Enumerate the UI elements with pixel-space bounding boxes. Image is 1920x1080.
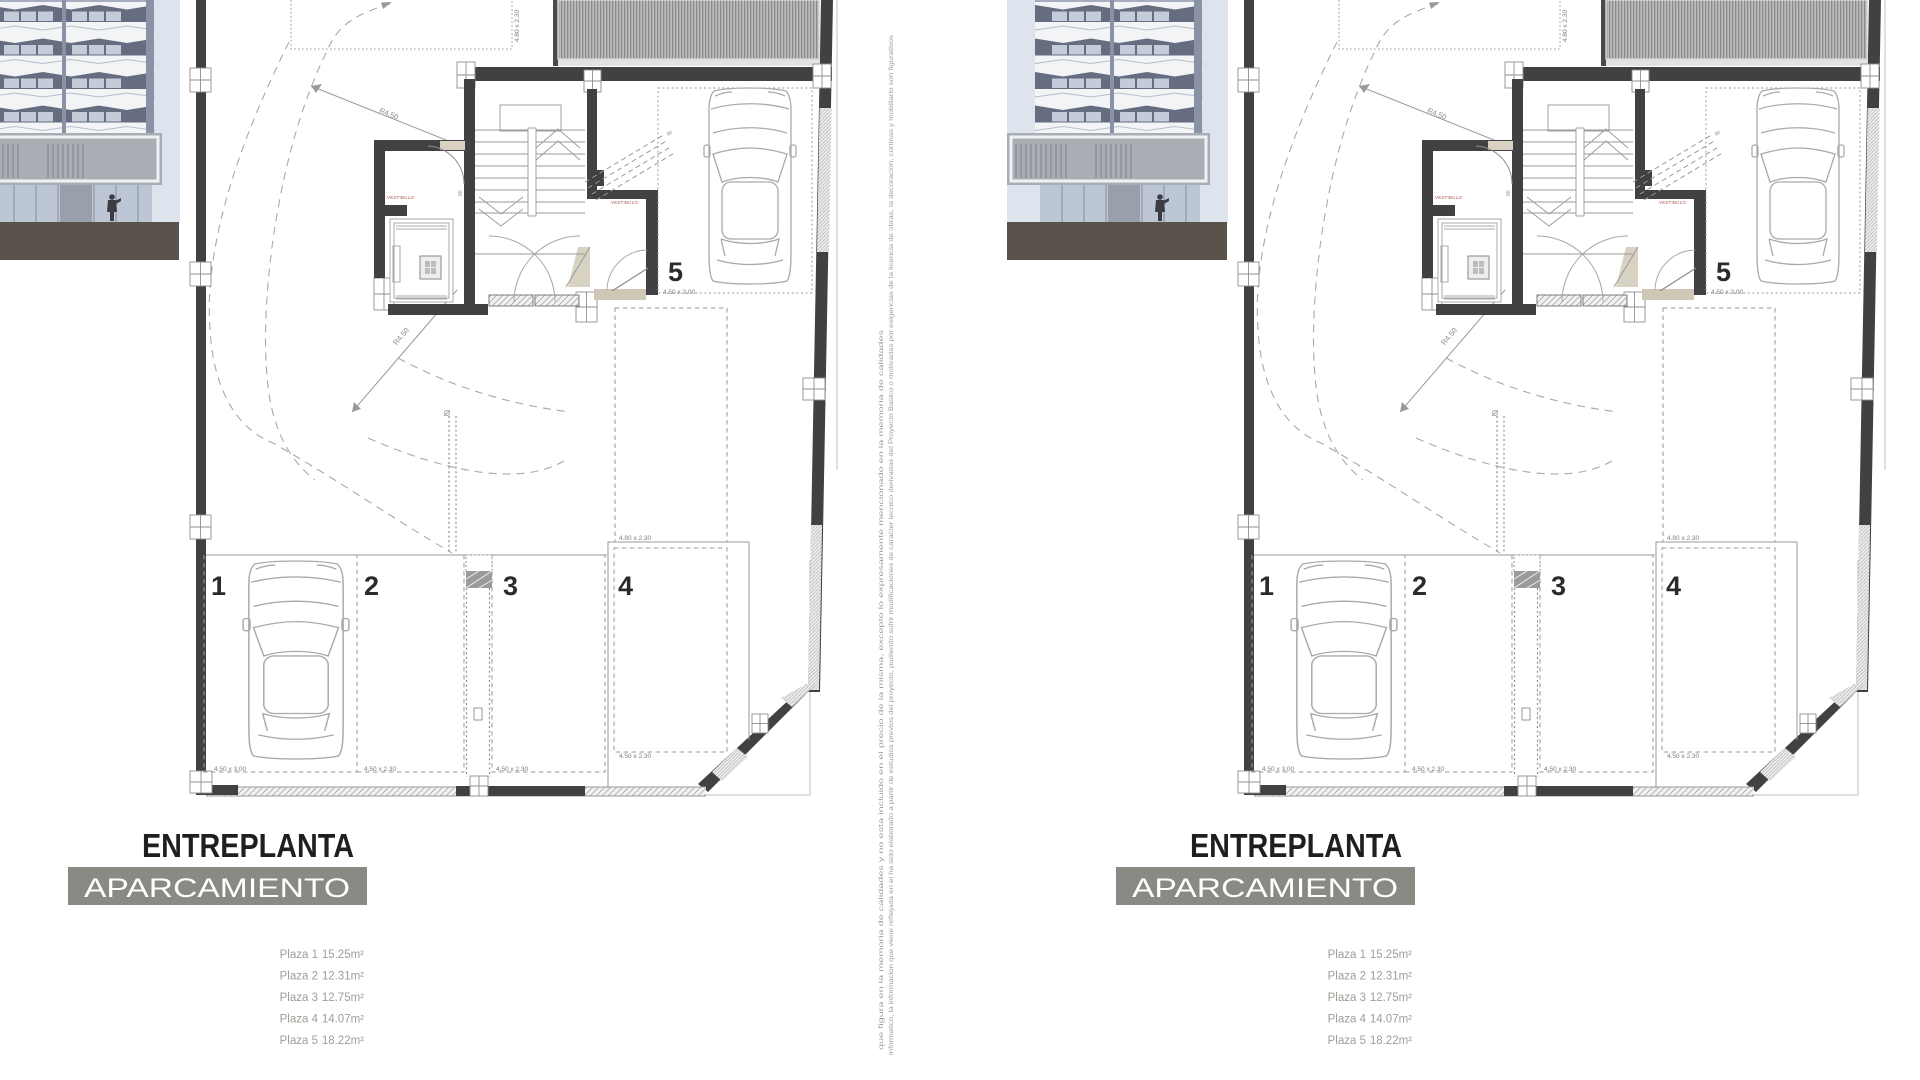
svg-text:informatico, la informacion qu: informatico, la informacion que viene re… bbox=[889, 35, 895, 1055]
svg-text:que figura en la memoria de ca: que figura en la memoria de calidades y … bbox=[879, 330, 885, 1050]
